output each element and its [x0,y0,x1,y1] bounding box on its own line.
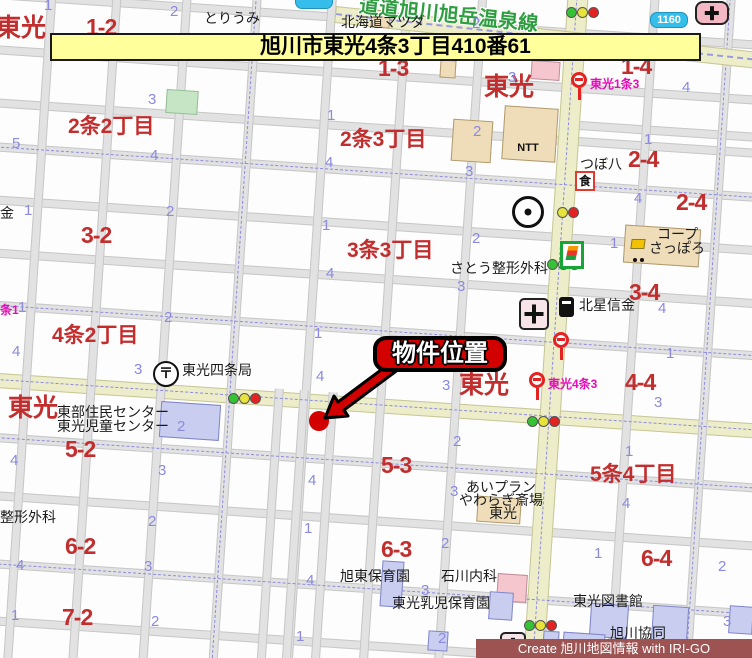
block-code-label: 6-4 [641,546,671,570]
lot-number: 1 [24,203,32,219]
lot-number: 2 [170,4,178,20]
lot-number: 4 [316,369,324,385]
block-code-label: 2-4 [628,147,658,171]
lot-number: 3 [442,378,450,394]
facility-label: 東光児童センター [57,419,169,434]
lot-number: 1 [327,108,335,124]
area-name-label: 東光 [8,395,58,421]
lot-number: 4 [10,453,18,469]
block-code-label: 6-3 [381,537,411,561]
lot-number: 2 [718,559,726,575]
lot-number: 4 [658,301,666,317]
bus-stop-label: 東光4条3 [548,378,597,391]
lot-number: 3 [457,279,465,295]
lot-number: 3 [134,362,142,378]
facility-label: 北海道マツダ [341,15,425,30]
lot-number: 2 [151,614,159,630]
lot-number: 1 [610,236,618,252]
facility-label: さっぽろ [649,241,705,256]
lot-number: 1 [296,629,304,645]
lot-number: 4 [12,344,20,360]
lot-number: 4 [325,155,333,171]
lot-number: 1 [625,444,633,460]
lot-number: 3 [654,395,662,411]
bus-stop-label: 条1 [0,304,19,317]
lot-number: 3 [508,70,516,86]
district-label: 2条2丁目 [68,116,154,138]
lot-number: 2 [441,536,449,552]
facility-label: 旭東保育園 [340,569,410,584]
lot-number: 3 [148,92,156,108]
lot-number: 4 [306,573,314,589]
lot-number: 3 [465,164,473,180]
block-code-label: 2-4 [676,190,706,214]
area-name-label: 東光 [459,372,509,398]
lot-number: 4 [682,80,690,96]
block-code-label: 3-2 [81,223,111,247]
facility-label: さとう整形外科 [450,261,548,276]
lot-number: 1 [644,132,652,148]
district-label: 3条3丁目 [347,240,433,262]
lot-number: 1 [594,546,602,562]
facility-label: 北星信金 [579,298,635,313]
facility-label: 東光乳児保育園 [392,596,490,611]
facility-label: 東光図書館 [573,594,643,609]
lot-number: 1 [44,0,52,14]
lot-number: 4 [308,473,316,489]
lot-number: 3 [158,463,166,479]
block-code-label: 6-2 [65,534,95,558]
lot-number: 1 [666,346,674,362]
lot-number: 4 [634,191,642,207]
lot-number: 4 [150,148,158,164]
facility-label: とりうみ [204,11,260,26]
district-label: 2条3丁目 [340,129,426,151]
lot-number: 2 [453,434,461,450]
facility-label: 東光 [489,506,517,521]
lot-number: 3 [421,583,429,599]
block-code-label: 5-3 [381,453,411,477]
lot-number: 5 [12,136,20,152]
facility-label: 石川内科 [441,569,497,584]
facility-label: 整形外科 [0,510,56,525]
lot-number: 3 [144,559,152,575]
lot-number: 2 [438,631,446,647]
lot-number: 2 [148,514,156,530]
lot-number: 2 [472,231,480,247]
lot-number: 2 [473,124,481,140]
lot-number: 3 [450,484,458,500]
lot-number: 2 [164,310,172,326]
lot-number: 1 [322,218,330,234]
block-code-label: 7-2 [62,605,92,629]
district-label: 4条2丁目 [52,325,138,347]
map-labels: 東光東光東光東光2条2丁目2条3丁目3条3丁目4条2丁目5条4丁目1-21-31… [0,0,752,658]
lot-number: 4 [326,266,334,282]
map-canvas: 〒 NTT 食 1160 東光東光東光東光2条2丁目2条3丁目3条3丁目4条2丁… [0,0,752,658]
lot-number: 1 [304,521,312,537]
district-label: 5条4丁目 [590,464,676,486]
property-callout: 物件位置 [373,336,507,372]
lot-number: 2 [472,16,480,32]
address-banner: 旭川市東光4条3丁目410番61 [50,33,701,61]
lot-number: 2 [177,419,185,435]
lot-number: 1 [314,326,322,342]
lot-number: 1 [11,608,19,624]
lot-number: 2 [166,204,174,220]
bus-stop-label: 東光1条3 [590,78,639,91]
block-code-label: 4-4 [625,370,655,394]
watermark: Create 旭川地図情報 with IRI-GO [476,639,752,658]
area-name-label: 東光 [0,15,46,41]
lot-number: 3 [723,614,731,630]
facility-label: 東光四条局 [182,363,252,378]
facility-label: 金 [0,206,14,221]
lot-number: 4 [16,558,24,574]
facility-label: つぼ八 [580,157,622,172]
block-code-label: 5-2 [65,437,95,461]
lot-number: 1 [18,300,26,316]
lot-number: 4 [622,496,630,512]
